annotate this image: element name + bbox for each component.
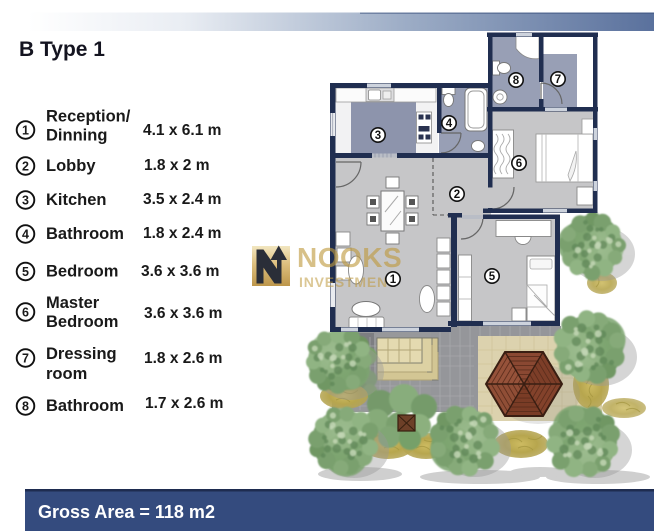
svg-text:Master: Master xyxy=(46,294,100,312)
svg-text:Kitchen: Kitchen xyxy=(46,191,107,209)
svg-text:room: room xyxy=(46,365,87,383)
svg-text:1.8 x 2.4 m: 1.8 x 2.4 m xyxy=(143,225,221,242)
svg-text:Bathroom: Bathroom xyxy=(46,397,124,415)
svg-text:3: 3 xyxy=(375,130,381,142)
svg-text:6: 6 xyxy=(22,306,29,320)
svg-text:8: 8 xyxy=(513,75,520,87)
svg-text:3: 3 xyxy=(22,194,29,208)
svg-text:Bedroom: Bedroom xyxy=(46,263,118,281)
svg-text:2: 2 xyxy=(22,160,29,174)
svg-text:1.7 x 2.6 m: 1.7 x 2.6 m xyxy=(145,395,223,412)
svg-text:3.6 x 3.6 m: 3.6 x 3.6 m xyxy=(144,305,222,322)
svg-text:7: 7 xyxy=(555,74,561,86)
svg-text:B Type 1: B Type 1 xyxy=(19,38,105,61)
svg-text:NOOKS: NOOKS xyxy=(297,242,402,273)
svg-text:1: 1 xyxy=(390,274,397,286)
svg-text:INVESTMENT: INVESTMENT xyxy=(299,274,397,290)
svg-text:4: 4 xyxy=(446,118,453,130)
svg-text:1: 1 xyxy=(22,124,29,138)
svg-text:5: 5 xyxy=(22,265,29,279)
svg-text:Reception/: Reception/ xyxy=(46,108,131,126)
svg-text:Dinning: Dinning xyxy=(46,127,107,145)
svg-text:1.8 x 2.6 m: 1.8 x 2.6 m xyxy=(144,350,222,367)
svg-text:2: 2 xyxy=(454,189,460,201)
svg-text:1.8 x 2 m: 1.8 x 2 m xyxy=(144,157,210,174)
svg-text:Bedroom: Bedroom xyxy=(46,313,118,331)
svg-text:Gross Area = 118 m2: Gross Area = 118 m2 xyxy=(38,502,215,522)
svg-text:3.5 x 2.4 m: 3.5 x 2.4 m xyxy=(143,191,221,208)
svg-text:Dressing: Dressing xyxy=(46,345,117,363)
svg-text:8: 8 xyxy=(22,400,29,414)
svg-text:5: 5 xyxy=(489,271,496,283)
svg-text:6: 6 xyxy=(516,158,522,170)
svg-text:3.6 x 3.6 m: 3.6 x 3.6 m xyxy=(141,263,219,280)
svg-text:Lobby: Lobby xyxy=(46,157,96,175)
svg-text:7: 7 xyxy=(22,352,29,366)
svg-text:4.1 x 6.1 m: 4.1 x 6.1 m xyxy=(143,122,221,139)
svg-text:4: 4 xyxy=(22,228,29,242)
svg-text:Bathroom: Bathroom xyxy=(46,225,124,243)
